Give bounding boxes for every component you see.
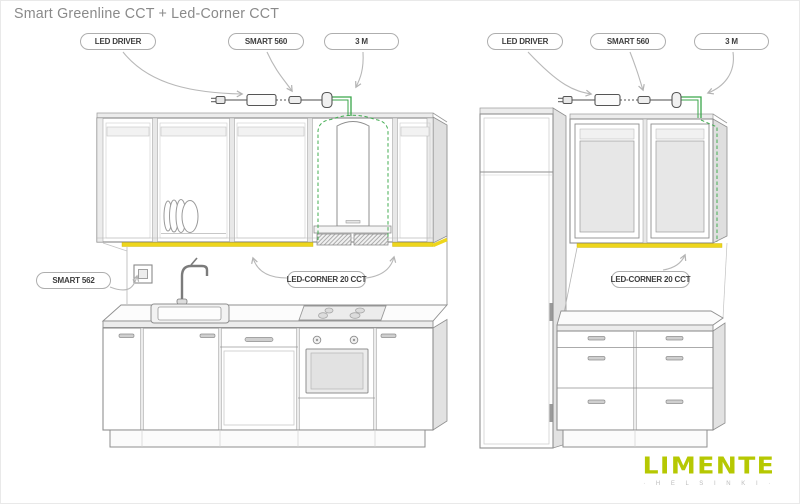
label-smart560-left: SMART 560 — [228, 33, 304, 50]
label-smart560-right: SMART 560 — [590, 33, 666, 50]
sink — [151, 304, 229, 323]
diagram-canvas — [0, 0, 800, 504]
left-kitchen-elevation — [97, 52, 447, 447]
glass-door — [651, 124, 709, 238]
drawing-page: Smart Greenline CCT + Led-Corner CCT LED… — [0, 0, 800, 504]
faucet — [177, 258, 207, 304]
drawer-handle — [588, 337, 605, 341]
hood-grille-right — [354, 234, 388, 245]
smart560-controller — [289, 97, 301, 104]
wall-outlet-smart562 — [134, 265, 152, 283]
drawer-handle — [666, 337, 683, 341]
led-driver-box — [595, 95, 620, 106]
power-chain-right — [558, 93, 681, 108]
door-handle — [550, 404, 553, 422]
label-led-driver-left: LED DRIVER — [80, 33, 156, 50]
drawer-handle — [245, 338, 273, 342]
door-handle — [550, 303, 553, 321]
power-chain-left — [211, 93, 332, 108]
led-driver-box — [247, 95, 276, 106]
door-handle — [381, 334, 396, 338]
label-smart562: SMART 562 — [36, 272, 111, 289]
drawer-handle — [588, 400, 605, 404]
page-title: Smart Greenline CCT + Led-Corner CCT — [14, 5, 279, 22]
cable-connector — [672, 93, 681, 108]
countertop-right — [557, 248, 723, 331]
drawer-handle — [666, 357, 683, 361]
cable-connector — [322, 93, 332, 108]
mains-plug — [563, 97, 572, 104]
cooktop — [299, 306, 386, 320]
door-handle — [200, 334, 215, 338]
right-kitchen-elevation — [480, 52, 733, 448]
glass-door — [575, 124, 639, 238]
tall-cabinet — [480, 108, 566, 448]
led-strip-right-kitchen — [577, 244, 722, 248]
logo-brand-text: LIMENTE — [638, 454, 780, 477]
label-led-driver-right: LED DRIVER — [487, 33, 563, 50]
drawer-handle — [666, 400, 683, 404]
limente-logo: LIMENTE · H E L S I N K I · — [638, 454, 780, 487]
label-3m-left: 3 M — [324, 33, 399, 50]
hood-grille-left — [317, 234, 351, 245]
label-3m-right: 3 M — [694, 33, 769, 50]
plinth-right — [563, 430, 707, 447]
base-cabinets-left — [103, 320, 447, 448]
plinth-left — [110, 430, 425, 447]
drawer-unit — [557, 323, 725, 447]
label-led-corner-left: LED-CORNER 20 CCT — [287, 271, 366, 288]
label-led-corner-right: LED-CORNER 20 CCT — [611, 271, 690, 288]
smart560-controller — [638, 97, 650, 104]
drawer-handle — [588, 357, 605, 361]
logo-city-text: · H E L S I N K I · — [638, 481, 780, 487]
backsplash-left — [103, 243, 207, 304]
mains-plug — [216, 97, 225, 104]
door-handle — [119, 334, 134, 338]
